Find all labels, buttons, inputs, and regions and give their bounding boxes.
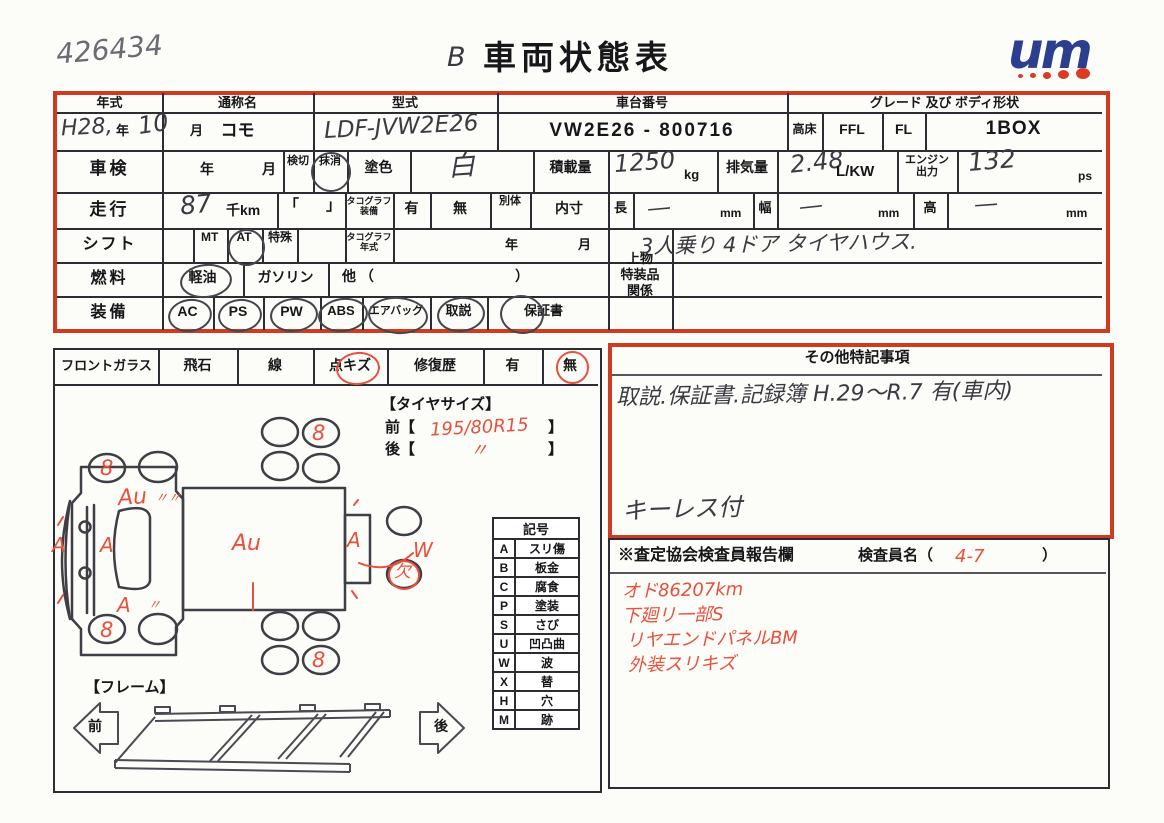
inspector-name-label: 検査員名（ [858, 548, 933, 565]
fuel-gasoline: ガソリン [243, 270, 328, 286]
legend-code: H [493, 691, 515, 710]
uwamono-label-2: 特装品 [608, 268, 672, 283]
grid-line [283, 150, 285, 192]
year-unit: 年 [116, 124, 129, 139]
equip-label: 装備 [57, 304, 162, 322]
frame-header: 【フレーム】 [85, 680, 175, 697]
naisun-label: 内寸 [530, 201, 608, 217]
length-value: ― [647, 197, 671, 221]
grade-body: 1BOX [925, 118, 1102, 139]
title-prefix: B [447, 44, 466, 71]
logo-dot [1076, 68, 1090, 79]
height-label: 高 [913, 201, 947, 216]
legend-header: 記号 [493, 518, 579, 539]
grid-line [162, 192, 164, 228]
grid-line [610, 572, 1106, 574]
disp-label: 排気量 [717, 160, 777, 176]
frame-diagram [60, 698, 480, 786]
legend-code: B [493, 558, 515, 577]
grid-line [328, 262, 330, 296]
grade-ffl: FFL [822, 122, 882, 138]
tacho-month-unit: 月 [578, 238, 591, 253]
mileage-label: 走行 [57, 200, 162, 219]
width-value: ― [799, 195, 823, 219]
width-unit: mm [878, 207, 899, 220]
bettai-label: 別体 [497, 195, 523, 207]
wave-mark: W [413, 540, 433, 560]
legend-label: 腐食 [515, 577, 579, 596]
uwamono-label-3: 関係 [608, 284, 672, 299]
vehicle-condition-sheet: 426434 B 車両状態表 um [0, 0, 1164, 823]
legend-code: C [493, 577, 515, 596]
kengiri-label: 検切 [286, 155, 310, 167]
tacho-year-label: タコグラフ年式 [346, 232, 392, 252]
paint-value: 白 [447, 152, 476, 181]
legend-label: 板金 [515, 558, 579, 577]
grid-line [487, 296, 489, 330]
legend-code: P [493, 596, 515, 615]
grade-takadoko: 高床 [787, 123, 822, 136]
legend-code: X [493, 672, 515, 691]
grade-header: グレード 及び ボディ形状 [787, 96, 1102, 111]
grid-line [57, 150, 1102, 152]
logo-dot [1018, 74, 1023, 78]
report-note-4: 外装スリキズ [628, 655, 736, 675]
chassis-value: VW2E26 - 800716 [497, 120, 787, 141]
inspector-name-close: ） [1042, 548, 1057, 565]
load-value: 1250 [613, 148, 676, 176]
grid-line [162, 150, 164, 192]
windshield-label: フロントガラス [55, 359, 158, 374]
legend-label: 波 [515, 653, 579, 672]
legend-code: M [493, 710, 515, 729]
legend-label: さび [515, 615, 579, 634]
grid-line [193, 228, 195, 262]
repair-history-label: 修復歴 [387, 358, 483, 374]
wheel-mark-front-left: 8 [100, 458, 113, 479]
logo-dot [1030, 73, 1036, 78]
symbol-legend: 記号 Aスリ傷 B板金 C腐食 P塗装 Sさび U凹凸曲 W波 X替 H穴 M跡 [492, 517, 580, 730]
cab-bottom-ditto-mark: 〃 [148, 599, 161, 612]
windshield-sen: 線 [237, 358, 313, 374]
shaken-month-unit: 月 [262, 162, 276, 178]
shift-mt: MT [201, 231, 217, 244]
legend-label: 穴 [515, 691, 579, 710]
engine-value: 132 [967, 146, 1017, 175]
tire-front-close: 】 [548, 420, 563, 437]
report-note-1: オド86207km [622, 581, 744, 601]
doc-number: 426434 [55, 31, 164, 68]
repair-yes: 有 [483, 358, 542, 374]
legend-label: 替 [515, 672, 579, 691]
report-header: ※査定協会検査員報告欄 [618, 547, 794, 565]
grid-line [277, 192, 279, 228]
height-value: ― [974, 193, 997, 216]
grid-line [777, 150, 779, 192]
cab-top-mark: Au [117, 486, 147, 510]
grid-line [490, 192, 492, 228]
logo-dot [1043, 72, 1051, 79]
wheel-mark-top-right: 8 [312, 423, 325, 444]
grid-line [777, 192, 779, 228]
cab-top-ditto-mark: 〃〃 [155, 492, 181, 505]
legend-code: W [493, 653, 515, 672]
grid-line [57, 112, 1102, 114]
remarks-line2: キーレス付 [622, 495, 743, 523]
engine-label: エンジン出力 [901, 154, 953, 179]
fuel-other-close: ） [515, 269, 529, 285]
shaken-year-unit: 年 [200, 162, 214, 178]
legend-label: 跡 [515, 710, 579, 729]
legend-code: A [493, 539, 515, 558]
remarks-header: その他特記事項 [612, 350, 1102, 367]
legend-label: 凹凸曲 [515, 634, 579, 653]
tacho-year-unit: 年 [505, 238, 518, 253]
grid-line [297, 228, 299, 262]
grade-fl: FL [882, 122, 925, 138]
grid-line [57, 192, 1102, 194]
mileage-bracket-close: 」 [326, 198, 341, 215]
uwamono-note: 3人乗り 4ドア タイヤハウス. [640, 232, 917, 258]
legend-label: スリ傷 [515, 539, 579, 558]
length-unit: mm [720, 207, 741, 220]
paint-label: 塗色 [347, 160, 410, 176]
wheel-mark-bottom-left: 8 [100, 620, 113, 641]
rear-panel-mark: A [347, 530, 361, 550]
name-value: コモ [162, 121, 313, 140]
bumper-mark: A [52, 535, 66, 555]
length-label: 長 [608, 201, 633, 216]
year-era-value: H28, [60, 116, 113, 141]
chassis-header: 車台番号 [497, 96, 787, 111]
shaken-label: 車検 [57, 159, 162, 178]
year-header: 年式 [57, 96, 162, 111]
name-header: 通称名 [162, 96, 313, 111]
cab-center-mark: A [100, 535, 114, 555]
mileage-unit: 千km [226, 203, 260, 219]
logo-dot [1058, 70, 1069, 79]
legend-label: 塗装 [515, 596, 579, 615]
body-mark: Au [232, 533, 261, 555]
legend-code: S [493, 615, 515, 634]
engine-unit: ps [1078, 170, 1092, 183]
windshield-hiseki: 飛石 [158, 358, 237, 374]
inspector-name-value: 4-7 [955, 548, 984, 566]
load-unit: kg [684, 168, 699, 183]
frame-rear-arrow-label: 後 [434, 719, 448, 735]
report-note-2: 下廻リ一部S [622, 606, 724, 626]
frame-front-arrow-label: 前 [88, 719, 102, 735]
report-note-3: リヤエンドパネルBM [626, 630, 798, 651]
repair-no-red-circle-mark [556, 351, 589, 384]
mileage-bracket-open: 「 [284, 198, 299, 215]
model-header: 型式 [313, 96, 497, 111]
grid-line [393, 228, 395, 262]
wheel-mark-bottom-right: 8 [312, 650, 325, 671]
load-label: 積載量 [533, 160, 608, 176]
shift-tokushu: 特殊 [267, 231, 293, 244]
fuel-label: 燃料 [57, 270, 162, 288]
fuel-other-open: 他 （ [342, 269, 374, 285]
grid-line [897, 150, 899, 192]
grid-line [957, 150, 959, 192]
tacho-no: 無 [430, 201, 490, 217]
width-label: 幅 [753, 201, 777, 216]
mileage-value: 87 [179, 190, 213, 218]
grid-line [410, 150, 412, 192]
tire-rear-close: 】 [548, 442, 563, 459]
tacho-equip-label: タコグラフ装備 [346, 196, 392, 216]
tacho-yes: 有 [393, 201, 430, 217]
page-title: 車両状態表 [483, 40, 673, 77]
height-unit: mm [1066, 207, 1087, 220]
grid-line [947, 192, 949, 228]
grid-line [633, 192, 635, 228]
grid-line [612, 374, 1102, 376]
disp-unit: L/KW [836, 164, 874, 181]
cab-bottom-mark: A [117, 595, 131, 615]
grid-line [608, 150, 610, 330]
legend-code: U [493, 634, 515, 653]
grid-line [55, 384, 598, 386]
shift-label: シフト [57, 236, 162, 254]
